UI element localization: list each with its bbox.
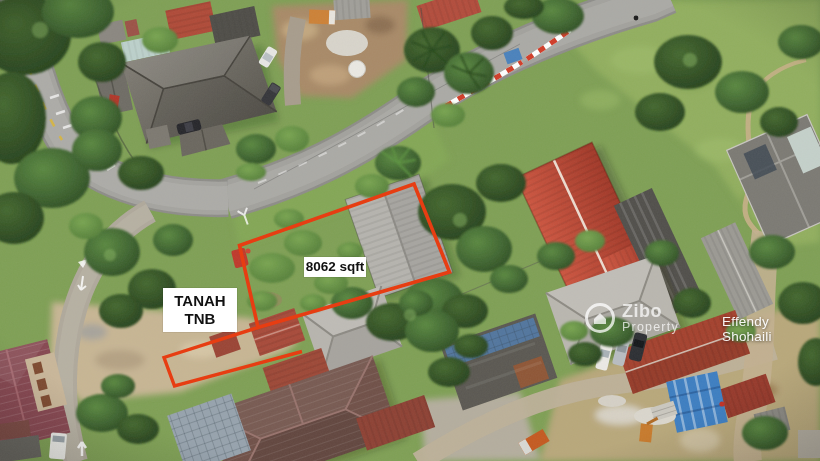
watermark-brand-sub: Property — [622, 321, 679, 334]
tanah-tnb-label-line2: TNB — [163, 310, 237, 328]
watermark-brand: Zibo — [622, 302, 679, 320]
area-label: 8062 sqft — [304, 257, 366, 277]
zibo-property-logo-icon — [583, 301, 617, 335]
plot-boundary-tnb-strip — [164, 328, 302, 387]
watermark: Zibo Property — [583, 301, 679, 335]
aerial-photo: 8062 sqft TANAH TNB Zibo Property Effend… — [0, 0, 820, 461]
plot-boundary-main — [240, 184, 450, 328]
tanah-tnb-label: TANAH TNB — [163, 288, 237, 332]
tanah-tnb-label-line1: TANAH — [163, 292, 237, 310]
plot-outline-overlay — [0, 0, 820, 461]
agent-name-watermark: Effendy Shohaili — [722, 314, 820, 344]
